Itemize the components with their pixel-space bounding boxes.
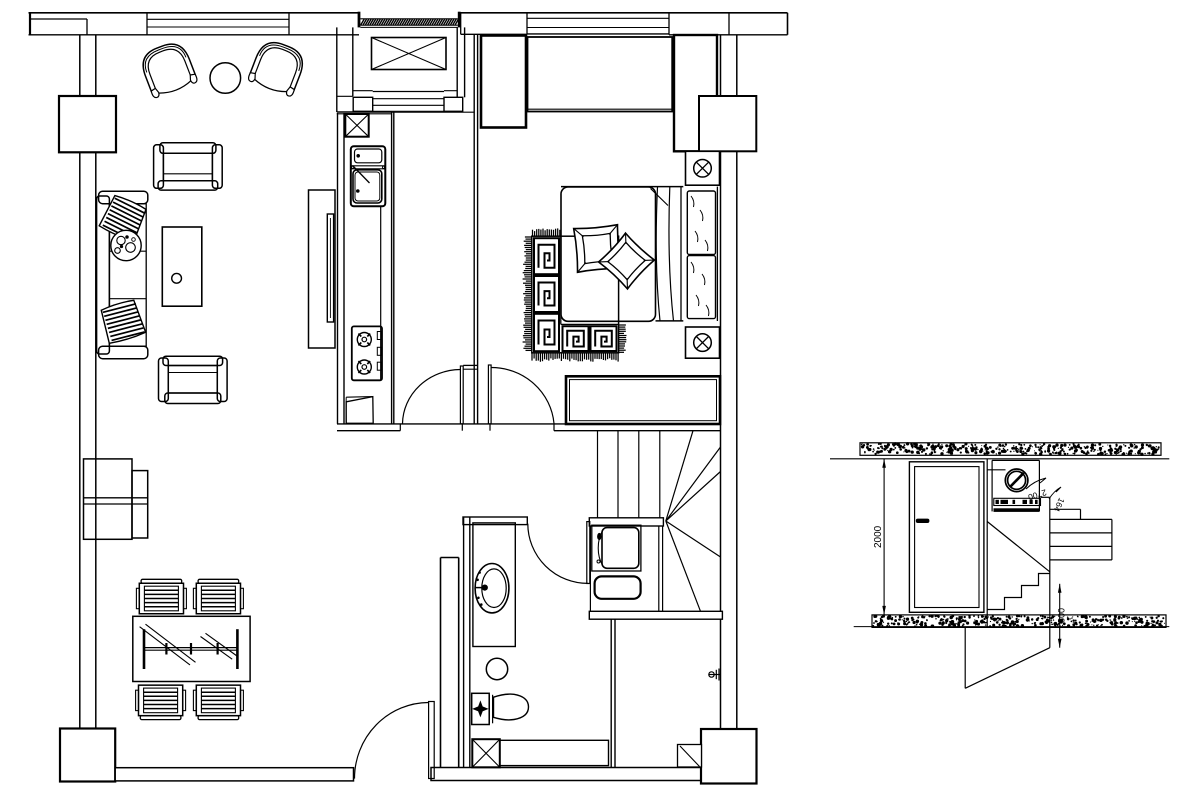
svg-text:2000: 2000 <box>873 525 884 548</box>
svg-text:800: 800 <box>1057 608 1067 623</box>
